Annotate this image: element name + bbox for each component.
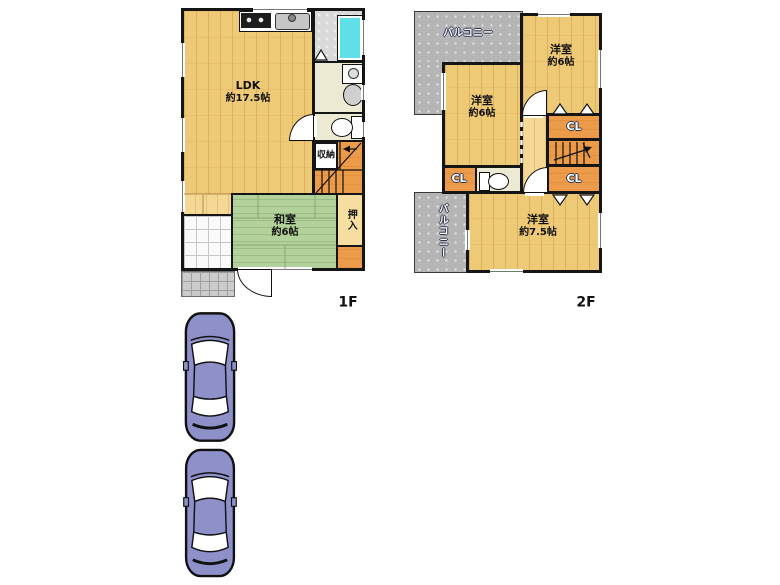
wall: [520, 13, 523, 116]
wall: [520, 116, 523, 194]
window: [180, 43, 185, 77]
wall: [312, 140, 365, 142]
bedroom-s-name: 洋室: [519, 213, 557, 227]
window: [180, 118, 185, 152]
label-closet-bottom: CL: [566, 172, 581, 186]
ldk-name: LDK: [226, 79, 271, 93]
wall: [467, 270, 602, 273]
ldk-size: 約17.5帖: [226, 93, 271, 106]
car-top: [183, 310, 237, 444]
washitsu-name: 和室: [272, 213, 299, 227]
label-ldk: LDK 約17.5帖: [226, 79, 271, 105]
wall: [181, 214, 233, 216]
entrance-porch: [181, 271, 235, 297]
bedroom-s-size: 約7.5帖: [519, 227, 557, 240]
window: [538, 12, 570, 17]
window: [361, 122, 366, 137]
label-closet-left: CL: [451, 172, 466, 186]
wall: [442, 191, 602, 194]
washer-drum-icon: [348, 68, 359, 79]
bedroom-ne-name: 洋室: [548, 43, 575, 57]
wall: [233, 193, 365, 195]
wall: [336, 245, 365, 247]
wall: [549, 138, 602, 141]
storage-box-south: [338, 247, 363, 268]
window: [180, 181, 185, 212]
window: [253, 7, 307, 12]
toilet-bowl-1f: [331, 118, 353, 137]
room-hall-1f: [184, 194, 231, 215]
window: [361, 20, 366, 55]
label-washitsu: 和室 約6帖: [272, 213, 299, 239]
wall: [442, 165, 523, 168]
window: [441, 73, 446, 110]
wall: [475, 168, 477, 192]
label-bedroom-ne: 洋室 約6帖: [548, 43, 575, 69]
window: [361, 85, 366, 100]
bedroom-w-name: 洋室: [469, 94, 496, 108]
wall: [315, 61, 365, 63]
stairs-2f: [549, 141, 600, 165]
washitsu-size: 約6帖: [272, 227, 299, 240]
label-floor-2f: 2F: [576, 294, 595, 312]
toilet-bowl-2f: [488, 173, 509, 190]
window: [465, 230, 470, 250]
label-closet-top: CL: [566, 120, 581, 134]
floor-plan: LDK 約17.5帖 和室 約6帖 押入 収納 洋室 約6帖 洋室 約6帖 洋室…: [0, 0, 780, 585]
room-genkan: [184, 216, 231, 268]
window: [490, 269, 523, 274]
wall: [336, 195, 338, 270]
car-bottom: [183, 448, 237, 578]
label-bedroom-s: 洋室 約7.5帖: [519, 213, 557, 239]
faucet-icon: [288, 14, 296, 22]
line-art-overlay: [0, 0, 780, 585]
window: [598, 213, 603, 248]
wash-basin-icon: [343, 84, 363, 106]
window: [598, 50, 603, 88]
label-floor-1f: 1F: [338, 294, 357, 312]
label-oshiire: 押入: [344, 209, 357, 231]
label-bedroom-w: 洋室 約6帖: [469, 94, 496, 120]
wall: [549, 164, 602, 167]
label-balcony-bottom: バルコニー: [435, 204, 448, 259]
bathtub: [337, 15, 363, 61]
label-storage: 収納: [317, 150, 335, 161]
bedroom-w-size: 約6帖: [469, 108, 496, 121]
stove-icon: [241, 13, 271, 28]
label-balcony-top: バルコニー: [443, 28, 493, 41]
wall: [442, 62, 523, 65]
wall: [312, 8, 315, 195]
wall: [315, 112, 365, 114]
wall: [231, 193, 233, 271]
bedroom-ne-size: 約6帖: [548, 57, 575, 70]
entrance-door-arc: [237, 269, 272, 297]
